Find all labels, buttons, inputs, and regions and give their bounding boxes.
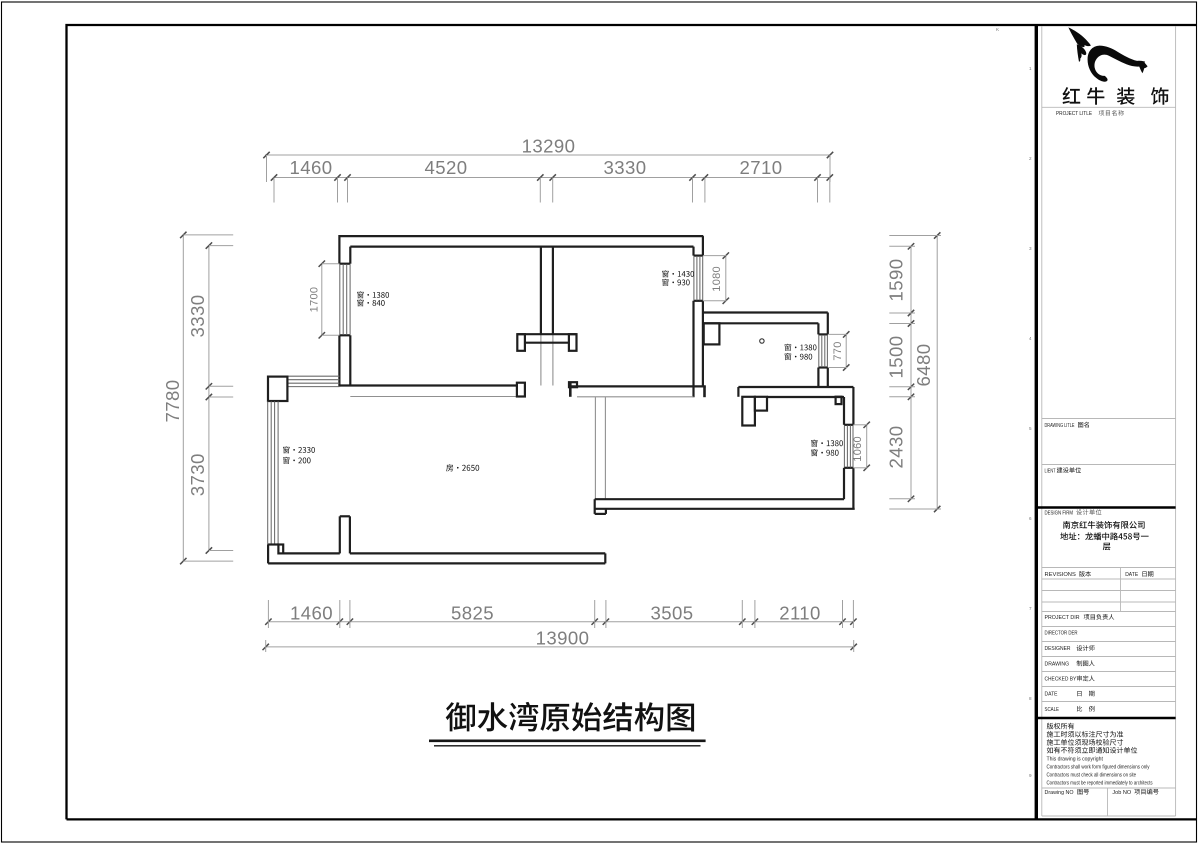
- svg-text:Contractors must be reported i: Contractors must be reported immediately…: [1047, 781, 1153, 787]
- svg-text:DRAWING LITLE: DRAWING LITLE: [1045, 423, 1075, 429]
- svg-text:1: 1: [1029, 66, 1032, 71]
- svg-text:1060: 1060: [852, 436, 864, 462]
- svg-text:DATE: DATE: [1045, 692, 1058, 698]
- svg-text:Job NO: Job NO: [1112, 790, 1131, 796]
- svg-text:Drawing NO: Drawing NO: [1045, 790, 1074, 796]
- svg-text:5: 5: [1029, 426, 1032, 431]
- svg-text:2110: 2110: [779, 602, 821, 623]
- svg-text:3330: 3330: [604, 157, 647, 178]
- svg-text:CHECKED BY: CHECKED BY: [1045, 677, 1077, 683]
- svg-text:5825: 5825: [451, 602, 494, 623]
- svg-text:DESIGNER: DESIGNER: [1045, 646, 1071, 652]
- svg-text:3730: 3730: [187, 453, 208, 496]
- svg-text:3: 3: [1029, 246, 1032, 251]
- svg-text:2: 2: [1029, 156, 1032, 161]
- svg-text:3505: 3505: [651, 602, 694, 623]
- svg-text:This drawing is copyright: This drawing is copyright: [1047, 757, 1104, 763]
- svg-text:1700: 1700: [309, 287, 321, 313]
- svg-text:1500: 1500: [885, 336, 906, 379]
- svg-text:DESIGN FIRM: DESIGN FIRM: [1045, 510, 1074, 516]
- svg-text:Contractors shall work form fi: Contractors shall work form figured dime…: [1047, 765, 1150, 771]
- svg-text:1460: 1460: [290, 157, 333, 178]
- svg-text:7780: 7780: [162, 380, 183, 423]
- svg-text:PROJECT DIR: PROJECT DIR: [1045, 615, 1080, 621]
- svg-text:DIRECTOR DER: DIRECTOR DER: [1045, 631, 1078, 637]
- svg-text:7: 7: [1029, 606, 1032, 611]
- svg-text:6480: 6480: [913, 344, 934, 387]
- svg-text:13290: 13290: [522, 135, 576, 156]
- svg-text:PROJECT LITLE: PROJECT LITLE: [1056, 111, 1092, 117]
- svg-text:4: 4: [1029, 336, 1032, 341]
- svg-text:13900: 13900: [536, 628, 590, 649]
- svg-text:LIENT: LIENT: [1045, 468, 1056, 474]
- svg-text:770: 770: [832, 341, 844, 360]
- svg-text:1080: 1080: [711, 266, 723, 292]
- svg-text:SCALE: SCALE: [1045, 707, 1060, 713]
- svg-text:1460: 1460: [290, 602, 333, 623]
- svg-text:1590: 1590: [885, 259, 906, 302]
- svg-text:8: 8: [1029, 696, 1032, 701]
- svg-text:3330: 3330: [187, 295, 208, 338]
- svg-text:2710: 2710: [740, 157, 783, 178]
- svg-text:9: 9: [1029, 773, 1032, 778]
- svg-text:DATE: DATE: [1125, 572, 1138, 578]
- svg-text:4520: 4520: [425, 157, 468, 178]
- svg-text:DRAWING: DRAWING: [1045, 661, 1070, 667]
- svg-text:2430: 2430: [885, 426, 906, 469]
- svg-text:6: 6: [1029, 516, 1032, 521]
- svg-text:Contractors must check all dim: Contractors must check all dimensions on…: [1047, 772, 1137, 778]
- svg-text:REVISIONS: REVISIONS: [1045, 572, 1076, 578]
